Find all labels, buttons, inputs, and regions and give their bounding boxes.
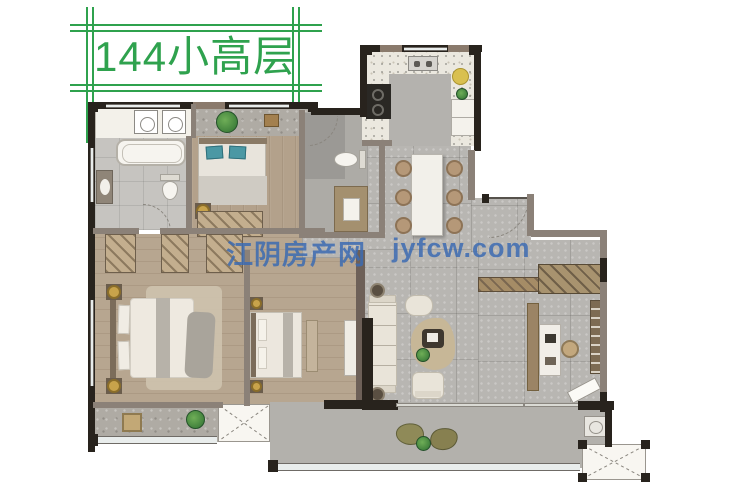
bed-runner bbox=[283, 313, 293, 377]
book bbox=[545, 357, 556, 365]
bedroom2-bed bbox=[198, 137, 266, 205]
wall-corner bbox=[308, 102, 318, 112]
platform-corner bbox=[641, 473, 650, 482]
kitchen-center-block bbox=[389, 74, 451, 146]
wall bbox=[360, 45, 367, 117]
bed-runner bbox=[156, 298, 170, 378]
terrace-basin bbox=[584, 416, 606, 437]
ottoman bbox=[405, 295, 433, 316]
dining-chair bbox=[395, 217, 412, 234]
cooktop-icon bbox=[366, 84, 391, 119]
study-cabinet bbox=[527, 303, 539, 391]
plant-icon bbox=[216, 111, 238, 133]
coffee-table bbox=[422, 329, 444, 348]
terrace-window-sill bbox=[272, 463, 580, 471]
stool bbox=[264, 114, 279, 127]
side-table bbox=[370, 283, 385, 298]
platform-corner bbox=[578, 440, 587, 449]
entry-console bbox=[478, 277, 542, 292]
dining-table bbox=[411, 154, 443, 236]
table-lamp-icon bbox=[251, 298, 262, 309]
wall bbox=[531, 230, 607, 237]
plant-icon bbox=[186, 410, 205, 429]
wall bbox=[362, 140, 392, 146]
wall bbox=[191, 104, 196, 138]
wall bbox=[93, 402, 223, 408]
washer-drum bbox=[140, 117, 155, 132]
master-bed bbox=[110, 298, 194, 378]
table-lamp-icon bbox=[251, 381, 262, 392]
dining-chair bbox=[395, 160, 412, 177]
refrigerator bbox=[451, 99, 476, 136]
window bbox=[404, 47, 447, 51]
headboard bbox=[251, 313, 256, 377]
wall bbox=[299, 110, 305, 236]
desk bbox=[539, 324, 561, 376]
kitchen-sink bbox=[408, 56, 438, 71]
pillow bbox=[258, 347, 267, 369]
wall-corner bbox=[88, 102, 98, 112]
cutting-board bbox=[452, 68, 469, 85]
armchair-back bbox=[415, 391, 441, 397]
pillow bbox=[117, 305, 130, 334]
vegetable-icon bbox=[456, 88, 468, 100]
wall bbox=[244, 250, 250, 406]
wall-corner bbox=[88, 434, 98, 446]
balcony-window-sill bbox=[93, 436, 217, 444]
pillow bbox=[258, 319, 267, 341]
lintel bbox=[380, 45, 402, 52]
toilet-bowl bbox=[334, 152, 358, 167]
wall bbox=[362, 318, 373, 410]
desk-chair bbox=[561, 340, 579, 358]
dryer-icon bbox=[162, 110, 186, 134]
plant-icon bbox=[416, 348, 430, 362]
study-wardrobe bbox=[538, 264, 606, 294]
faucet bbox=[426, 61, 432, 67]
balcony-chair bbox=[122, 413, 142, 432]
window bbox=[106, 104, 180, 108]
throw-blanket bbox=[184, 311, 215, 378]
platform-corner bbox=[641, 440, 650, 449]
toilet-icon bbox=[160, 174, 180, 201]
dining-chair bbox=[446, 160, 463, 177]
wall-corner bbox=[268, 460, 278, 472]
dining-chair bbox=[446, 217, 463, 234]
wall bbox=[468, 150, 475, 200]
bedroom3-bed bbox=[250, 312, 302, 378]
bed-blanket bbox=[199, 176, 267, 205]
wall bbox=[93, 228, 139, 234]
laptop bbox=[545, 334, 556, 343]
master-wardrobe bbox=[105, 234, 136, 273]
wall bbox=[379, 140, 385, 236]
pillow-teal bbox=[206, 145, 224, 159]
sink-basin bbox=[100, 179, 110, 195]
bathtub-basin bbox=[122, 144, 182, 163]
washer-icon bbox=[134, 110, 158, 134]
faucet bbox=[414, 61, 420, 67]
dining-chair bbox=[395, 189, 412, 206]
door-hinge bbox=[482, 194, 489, 203]
window bbox=[90, 300, 94, 386]
toilet-icon bbox=[334, 150, 366, 169]
watermark: 江阴房产网 jyfcw.com bbox=[226, 233, 531, 272]
fridge-divider bbox=[452, 117, 475, 118]
equipment-platform bbox=[582, 444, 646, 480]
bed-bench bbox=[306, 320, 318, 372]
wall-corner bbox=[469, 45, 481, 55]
dryer-drum bbox=[168, 117, 183, 132]
dining-chair bbox=[446, 189, 463, 206]
watermark-site-name: 江阴房产网 bbox=[226, 233, 366, 272]
wall bbox=[186, 136, 192, 232]
toilet-tank bbox=[160, 174, 180, 181]
window bbox=[229, 104, 289, 108]
wall bbox=[474, 45, 481, 151]
pillow bbox=[117, 341, 130, 370]
title-frame-line-bottom bbox=[70, 84, 322, 92]
plant-icon bbox=[416, 436, 431, 451]
sliding-door bbox=[524, 403, 582, 407]
ac-platform bbox=[218, 404, 270, 442]
armchair bbox=[412, 372, 444, 399]
page-title: 144小高层 bbox=[94, 31, 294, 83]
burner bbox=[372, 89, 384, 101]
wall-corner bbox=[360, 45, 372, 55]
table-lamp-icon bbox=[107, 285, 121, 299]
toilet-tank bbox=[359, 150, 366, 169]
master-wardrobe bbox=[161, 234, 189, 273]
equipment-platform-hatch-icon bbox=[583, 445, 645, 479]
tray bbox=[427, 333, 438, 342]
ac-platform-hatch-icon bbox=[219, 405, 269, 441]
wall bbox=[605, 401, 612, 447]
headboard bbox=[199, 138, 267, 144]
burner bbox=[372, 104, 384, 116]
bathroom-vanity bbox=[96, 170, 113, 204]
toilet-bowl bbox=[162, 181, 178, 200]
platform-corner bbox=[578, 473, 587, 482]
wall bbox=[600, 258, 607, 282]
watermark-site-url: jyfcw.com bbox=[392, 233, 531, 272]
sliding-door bbox=[396, 403, 524, 407]
basin-bowl bbox=[589, 421, 603, 434]
window bbox=[90, 148, 94, 202]
wall bbox=[311, 108, 367, 115]
headboard bbox=[110, 298, 116, 378]
pillow-teal bbox=[229, 146, 247, 160]
table-lamp-icon bbox=[107, 379, 121, 393]
floorplan-image: 144小高层 bbox=[0, 0, 748, 498]
bedroom2-balcony-floor bbox=[193, 107, 313, 138]
sink-basin bbox=[343, 198, 360, 221]
bathroom2-vanity bbox=[334, 186, 368, 232]
wall bbox=[324, 400, 368, 409]
lintel bbox=[193, 102, 225, 109]
bathtub bbox=[116, 139, 186, 166]
